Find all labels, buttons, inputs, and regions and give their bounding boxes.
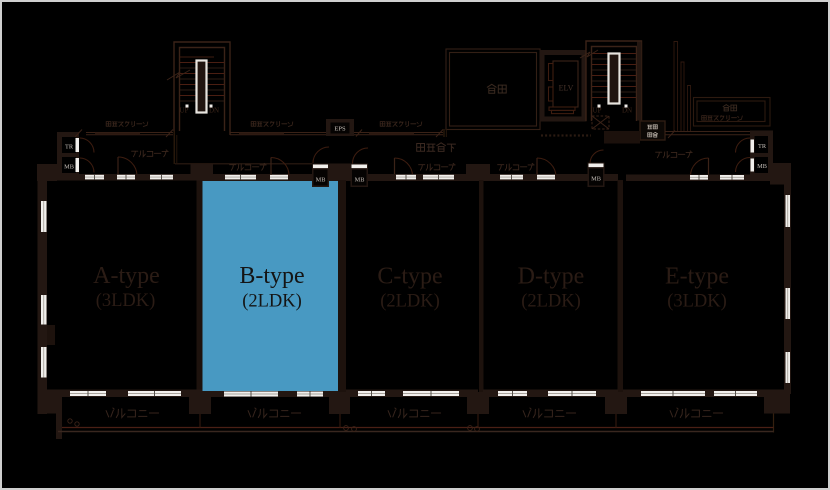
svg-text:MB: MB xyxy=(591,176,601,183)
svg-text:MB: MB xyxy=(316,177,326,184)
svg-text:TR: TR xyxy=(758,143,767,150)
svg-text:UP: UP xyxy=(180,107,189,115)
svg-text:ELV: ELV xyxy=(559,84,574,93)
svg-text:(3LDK): (3LDK) xyxy=(667,292,727,312)
svg-text:MB: MB xyxy=(757,163,767,170)
svg-text:TR: TR xyxy=(65,144,74,151)
svg-text:UP: UP xyxy=(593,107,602,115)
svg-text:D-type: D-type xyxy=(518,264,585,290)
svg-text:EPS: EPS xyxy=(334,126,346,133)
svg-text:MB: MB xyxy=(355,177,365,184)
svg-text:DN: DN xyxy=(209,107,219,115)
svg-text:(2LDK): (2LDK) xyxy=(521,292,581,312)
svg-text:(2LDK): (2LDK) xyxy=(380,292,440,312)
svg-text:B-type: B-type xyxy=(239,263,304,289)
svg-text:A-type: A-type xyxy=(93,263,160,289)
svg-text:C-type: C-type xyxy=(377,264,442,290)
svg-text:MB: MB xyxy=(64,164,74,171)
svg-text:(2LDK): (2LDK) xyxy=(242,292,302,312)
svg-text:E-type: E-type xyxy=(665,264,729,290)
svg-text:DN: DN xyxy=(622,107,632,115)
svg-text:(3LDK): (3LDK) xyxy=(96,291,156,311)
